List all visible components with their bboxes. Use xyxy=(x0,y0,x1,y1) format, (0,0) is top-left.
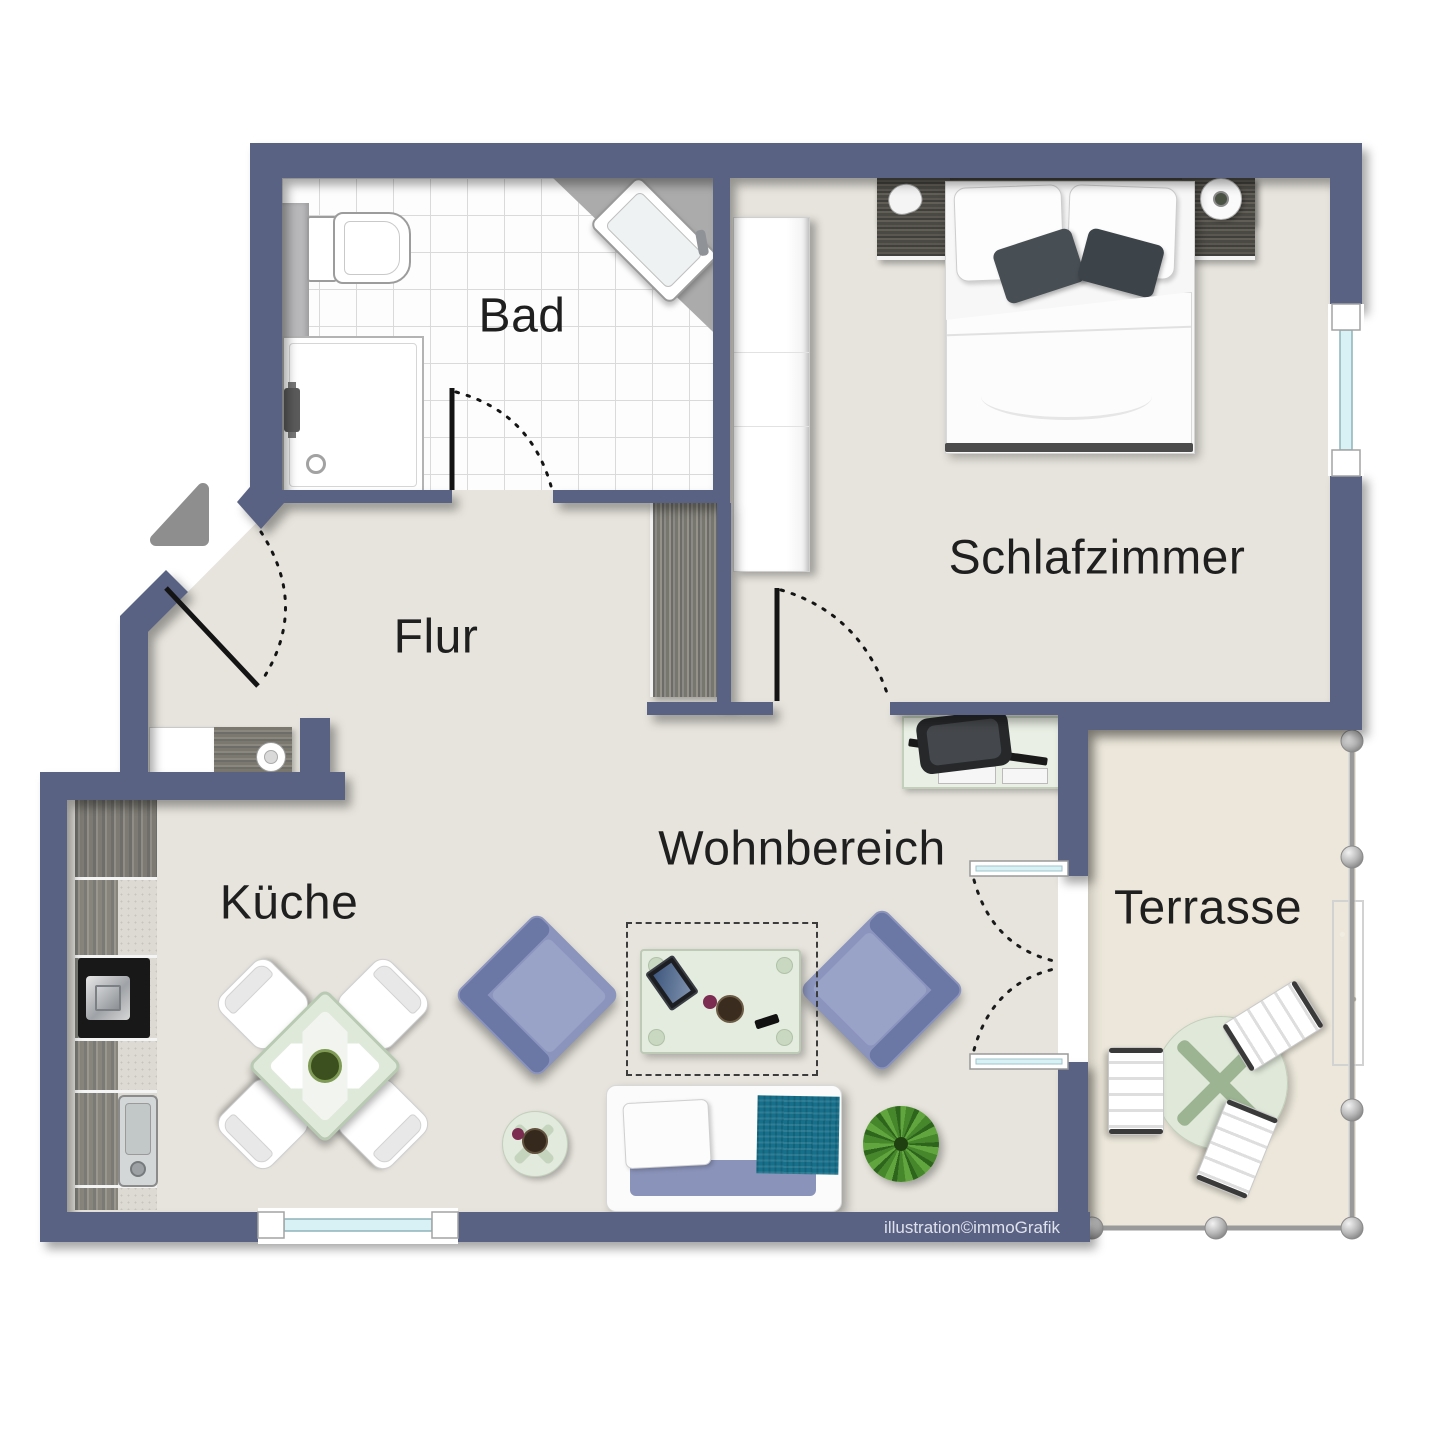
room-label-bad: Bad xyxy=(479,289,566,344)
room-label-schlafzimmer: Schlafzimmer xyxy=(949,531,1246,586)
entrance-arrow-icon xyxy=(156,489,203,540)
room-label-kueche: Küche xyxy=(220,876,359,931)
walls-overlay xyxy=(0,0,1440,1440)
room-label-terrasse: Terrasse xyxy=(1114,881,1302,936)
terrace-railing xyxy=(1081,730,1363,1239)
room-label-wohnbereich: Wohnbereich xyxy=(658,822,945,877)
terrace-doors xyxy=(970,861,1068,1069)
window-bottom xyxy=(258,1208,458,1244)
walls xyxy=(40,143,1362,1242)
illustration-credit: illustration©immoGrafik xyxy=(860,1218,1060,1238)
floor-plan: Bad Schlafzimmer Flur Küche Wohnbereich … xyxy=(0,0,1440,1440)
window-bedroom xyxy=(1328,304,1364,476)
room-label-flur: Flur xyxy=(394,610,479,665)
